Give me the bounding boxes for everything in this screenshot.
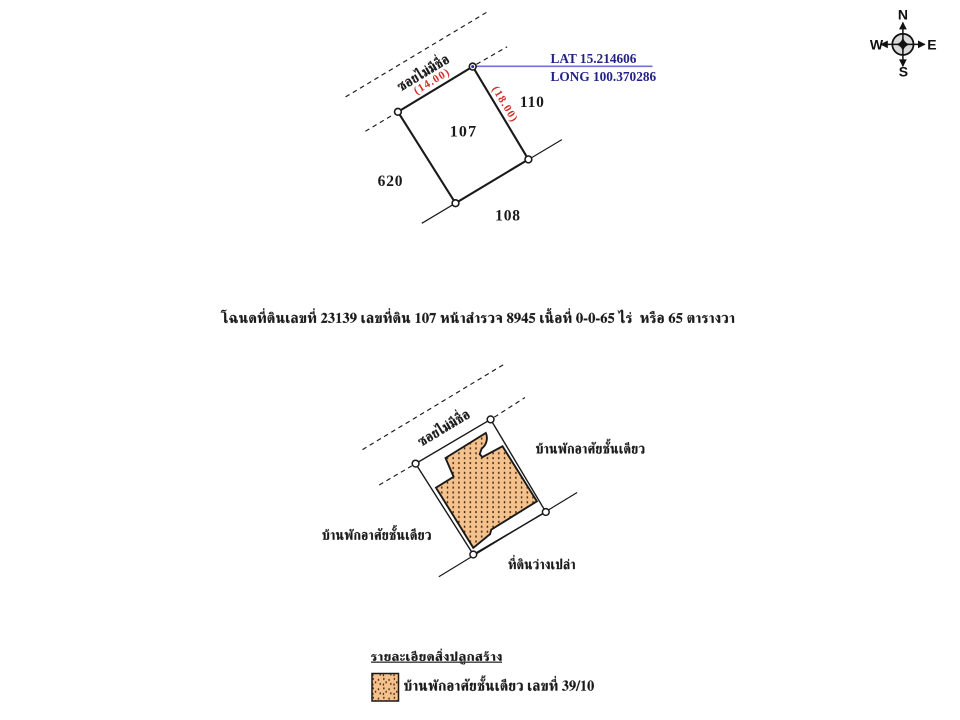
- svg-text:N: N: [898, 7, 908, 23]
- svg-text:110: 110: [520, 94, 545, 111]
- svg-text:LONG 100.370286: LONG 100.370286: [551, 69, 657, 84]
- svg-text:S: S: [899, 64, 908, 80]
- svg-text:108: 108: [495, 208, 521, 225]
- svg-text:E: E: [927, 36, 936, 52]
- svg-text:LAT 15.214606: LAT 15.214606: [551, 51, 637, 66]
- svg-text:107: 107: [450, 124, 478, 141]
- svg-text:620: 620: [378, 173, 404, 190]
- svg-text:W: W: [870, 36, 884, 52]
